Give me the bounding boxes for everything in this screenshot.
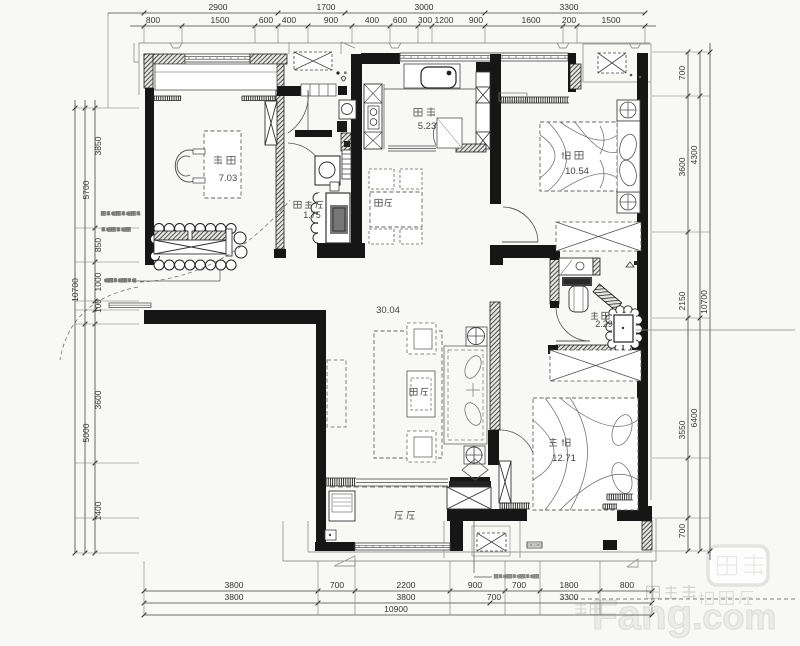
svg-text:5.23: 5.23 [418, 121, 437, 132]
svg-text:10900: 10900 [384, 604, 408, 614]
svg-text:2900: 2900 [209, 2, 228, 12]
svg-text:10700: 10700 [70, 278, 80, 302]
svg-text:3850: 3850 [93, 136, 103, 155]
svg-text:6400: 6400 [689, 408, 699, 427]
svg-text:3800: 3800 [225, 580, 244, 590]
svg-text:900: 900 [324, 15, 338, 25]
svg-text:700: 700 [512, 580, 526, 590]
svg-text:12.71: 12.71 [552, 453, 576, 464]
svg-text:800: 800 [620, 580, 634, 590]
svg-text:1.75: 1.75 [303, 210, 321, 220]
svg-text:600: 600 [393, 15, 407, 25]
svg-text:3550: 3550 [677, 420, 687, 439]
svg-text:5000: 5000 [81, 423, 91, 442]
svg-text:3300: 3300 [560, 592, 579, 602]
svg-text:700: 700 [330, 580, 344, 590]
svg-text:1400: 1400 [93, 501, 103, 520]
svg-text:700: 700 [677, 524, 687, 538]
svg-text:1700: 1700 [317, 2, 336, 12]
svg-text:4300: 4300 [689, 145, 699, 164]
svg-text:1800: 1800 [560, 580, 579, 590]
svg-text:1500: 1500 [602, 15, 621, 25]
svg-text:800: 800 [146, 15, 160, 25]
svg-text:2200: 2200 [397, 580, 416, 590]
svg-text:10.54: 10.54 [565, 166, 589, 177]
svg-text:1000: 1000 [93, 272, 103, 291]
svg-text:7.03: 7.03 [219, 173, 238, 184]
svg-text:2.29: 2.29 [595, 319, 613, 329]
svg-text:900: 900 [469, 15, 483, 25]
svg-text:3600: 3600 [93, 390, 103, 409]
svg-text:10700: 10700 [699, 290, 709, 314]
svg-text:400: 400 [365, 15, 379, 25]
svg-text:850: 850 [93, 238, 103, 252]
svg-text:30.04: 30.04 [376, 305, 400, 316]
svg-text:3000: 3000 [415, 2, 434, 12]
svg-text:300: 300 [418, 15, 432, 25]
svg-text:1200: 1200 [435, 15, 454, 25]
svg-text:600: 600 [259, 15, 273, 25]
svg-text:2150: 2150 [677, 291, 687, 310]
svg-text:100: 100 [94, 299, 103, 313]
svg-text:3600: 3600 [677, 157, 687, 176]
svg-text:900: 900 [468, 580, 482, 590]
svg-text:3800: 3800 [397, 592, 416, 602]
svg-text:1600: 1600 [522, 15, 541, 25]
svg-text:200: 200 [562, 15, 576, 25]
svg-text:3800: 3800 [225, 592, 244, 602]
svg-text:3300: 3300 [560, 2, 579, 12]
svg-text:700: 700 [677, 66, 687, 80]
svg-text:5700: 5700 [81, 180, 91, 199]
svg-text:1500: 1500 [211, 15, 230, 25]
svg-text:700: 700 [487, 592, 501, 602]
svg-text:400: 400 [282, 15, 296, 25]
